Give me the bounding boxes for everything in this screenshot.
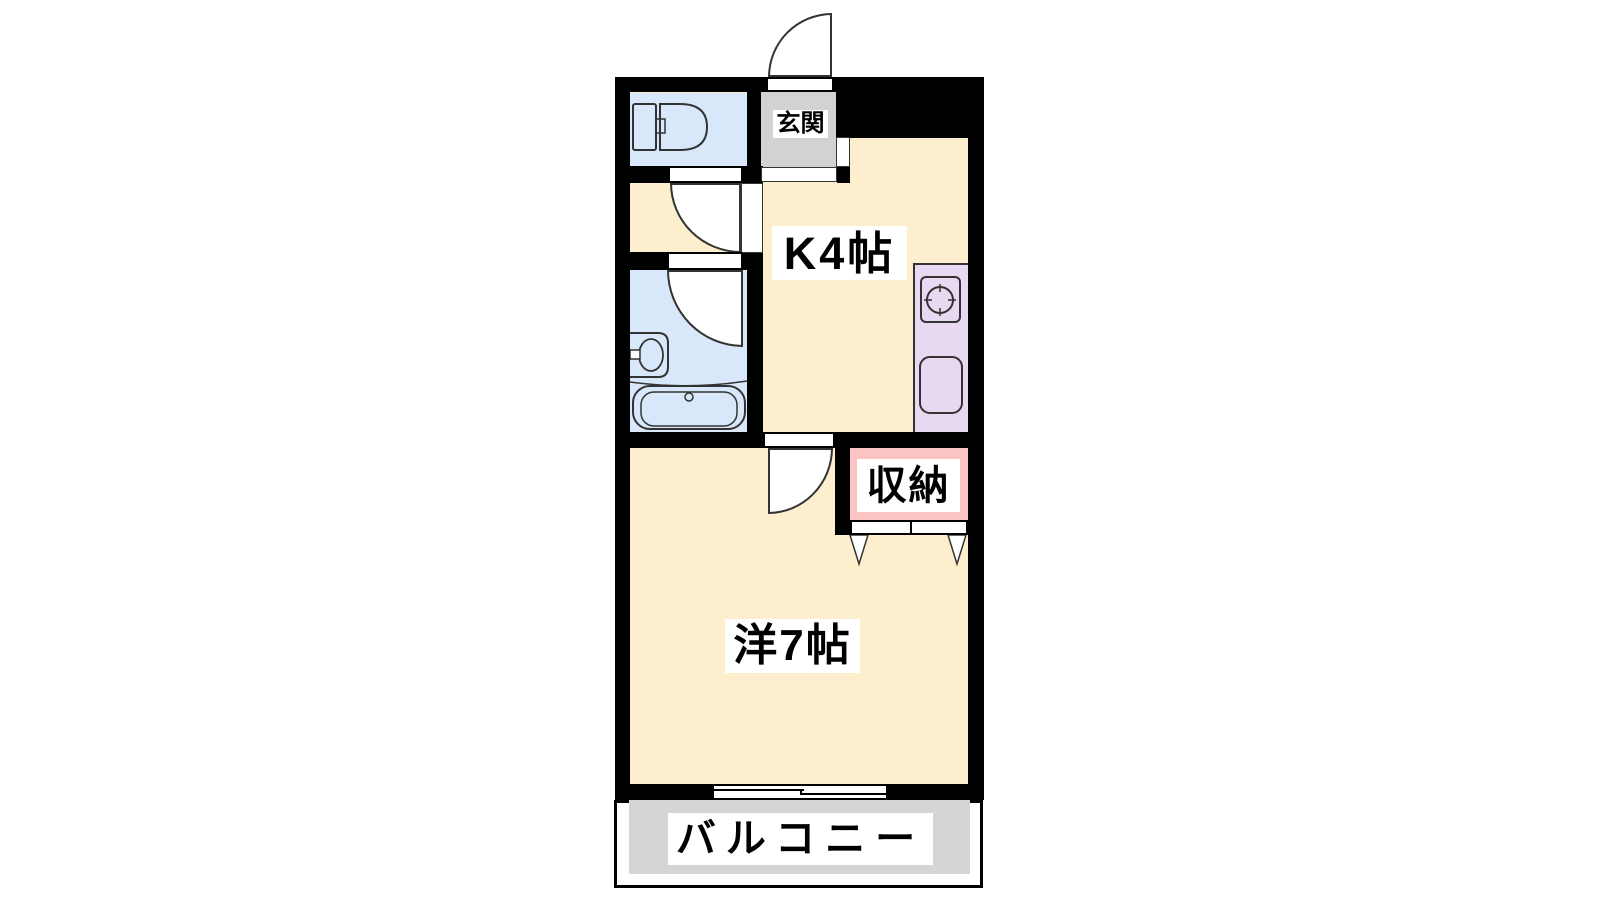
- western-room-label: 洋7帖: [725, 619, 860, 673]
- wall-toilet-entrance: [747, 92, 761, 167]
- bathroom-doorway: [667, 252, 743, 270]
- wall-bath-top-right: [743, 252, 763, 270]
- western-room-label-text: 洋7帖: [733, 624, 851, 668]
- wall-closet-top: [835, 432, 968, 448]
- window-rail-left: [714, 789, 804, 791]
- entrance-doorway: [766, 77, 834, 92]
- sliding-window-icon: [712, 784, 888, 800]
- window-rail-right: [800, 793, 886, 795]
- wall-closet-left: [835, 448, 850, 535]
- room-toilet: [630, 93, 747, 167]
- closet-label: 収納: [857, 459, 960, 512]
- kitchen-counter: [913, 263, 972, 436]
- window-rail-joint: [800, 789, 802, 795]
- entrance-label: 玄関: [773, 110, 828, 138]
- entrance-label-text: 玄関: [777, 112, 825, 136]
- entrance-step: [761, 167, 837, 182]
- closet-folding-door-strip: [850, 520, 968, 535]
- kitchen-label: K4帖: [772, 226, 907, 280]
- wall-top-right-thick: [836, 92, 968, 138]
- wall-right: [968, 77, 984, 800]
- balcony-label-text: バルコニー: [676, 819, 925, 859]
- wall-bottom-left: [615, 784, 712, 800]
- wall-entrance-corner-chunk: [837, 166, 850, 183]
- closet-label-text: 収納: [867, 466, 951, 506]
- wall-bath-top-left: [630, 252, 667, 270]
- toilet-door-pocket: [741, 183, 763, 253]
- toilet-doorway: [668, 166, 743, 183]
- entrance-door-arc: [768, 13, 832, 77]
- kitchen-label-text: K4帖: [784, 231, 896, 276]
- entrance-side-opening: [836, 137, 850, 167]
- closet-door-divider: [910, 522, 912, 533]
- western-room-doorway: [763, 432, 835, 448]
- wall-below-toilet-left: [630, 166, 670, 183]
- wall-bath-right: [747, 270, 763, 432]
- floor-plan: 収納 玄関 K4帖 洋7帖 バルコニー: [0, 0, 1600, 900]
- wall-bottom-right: [888, 784, 984, 800]
- wall-below-toilet-right: [741, 166, 763, 183]
- wall-kitchen-western-left: [615, 432, 765, 448]
- balcony-label: バルコニー: [668, 813, 933, 865]
